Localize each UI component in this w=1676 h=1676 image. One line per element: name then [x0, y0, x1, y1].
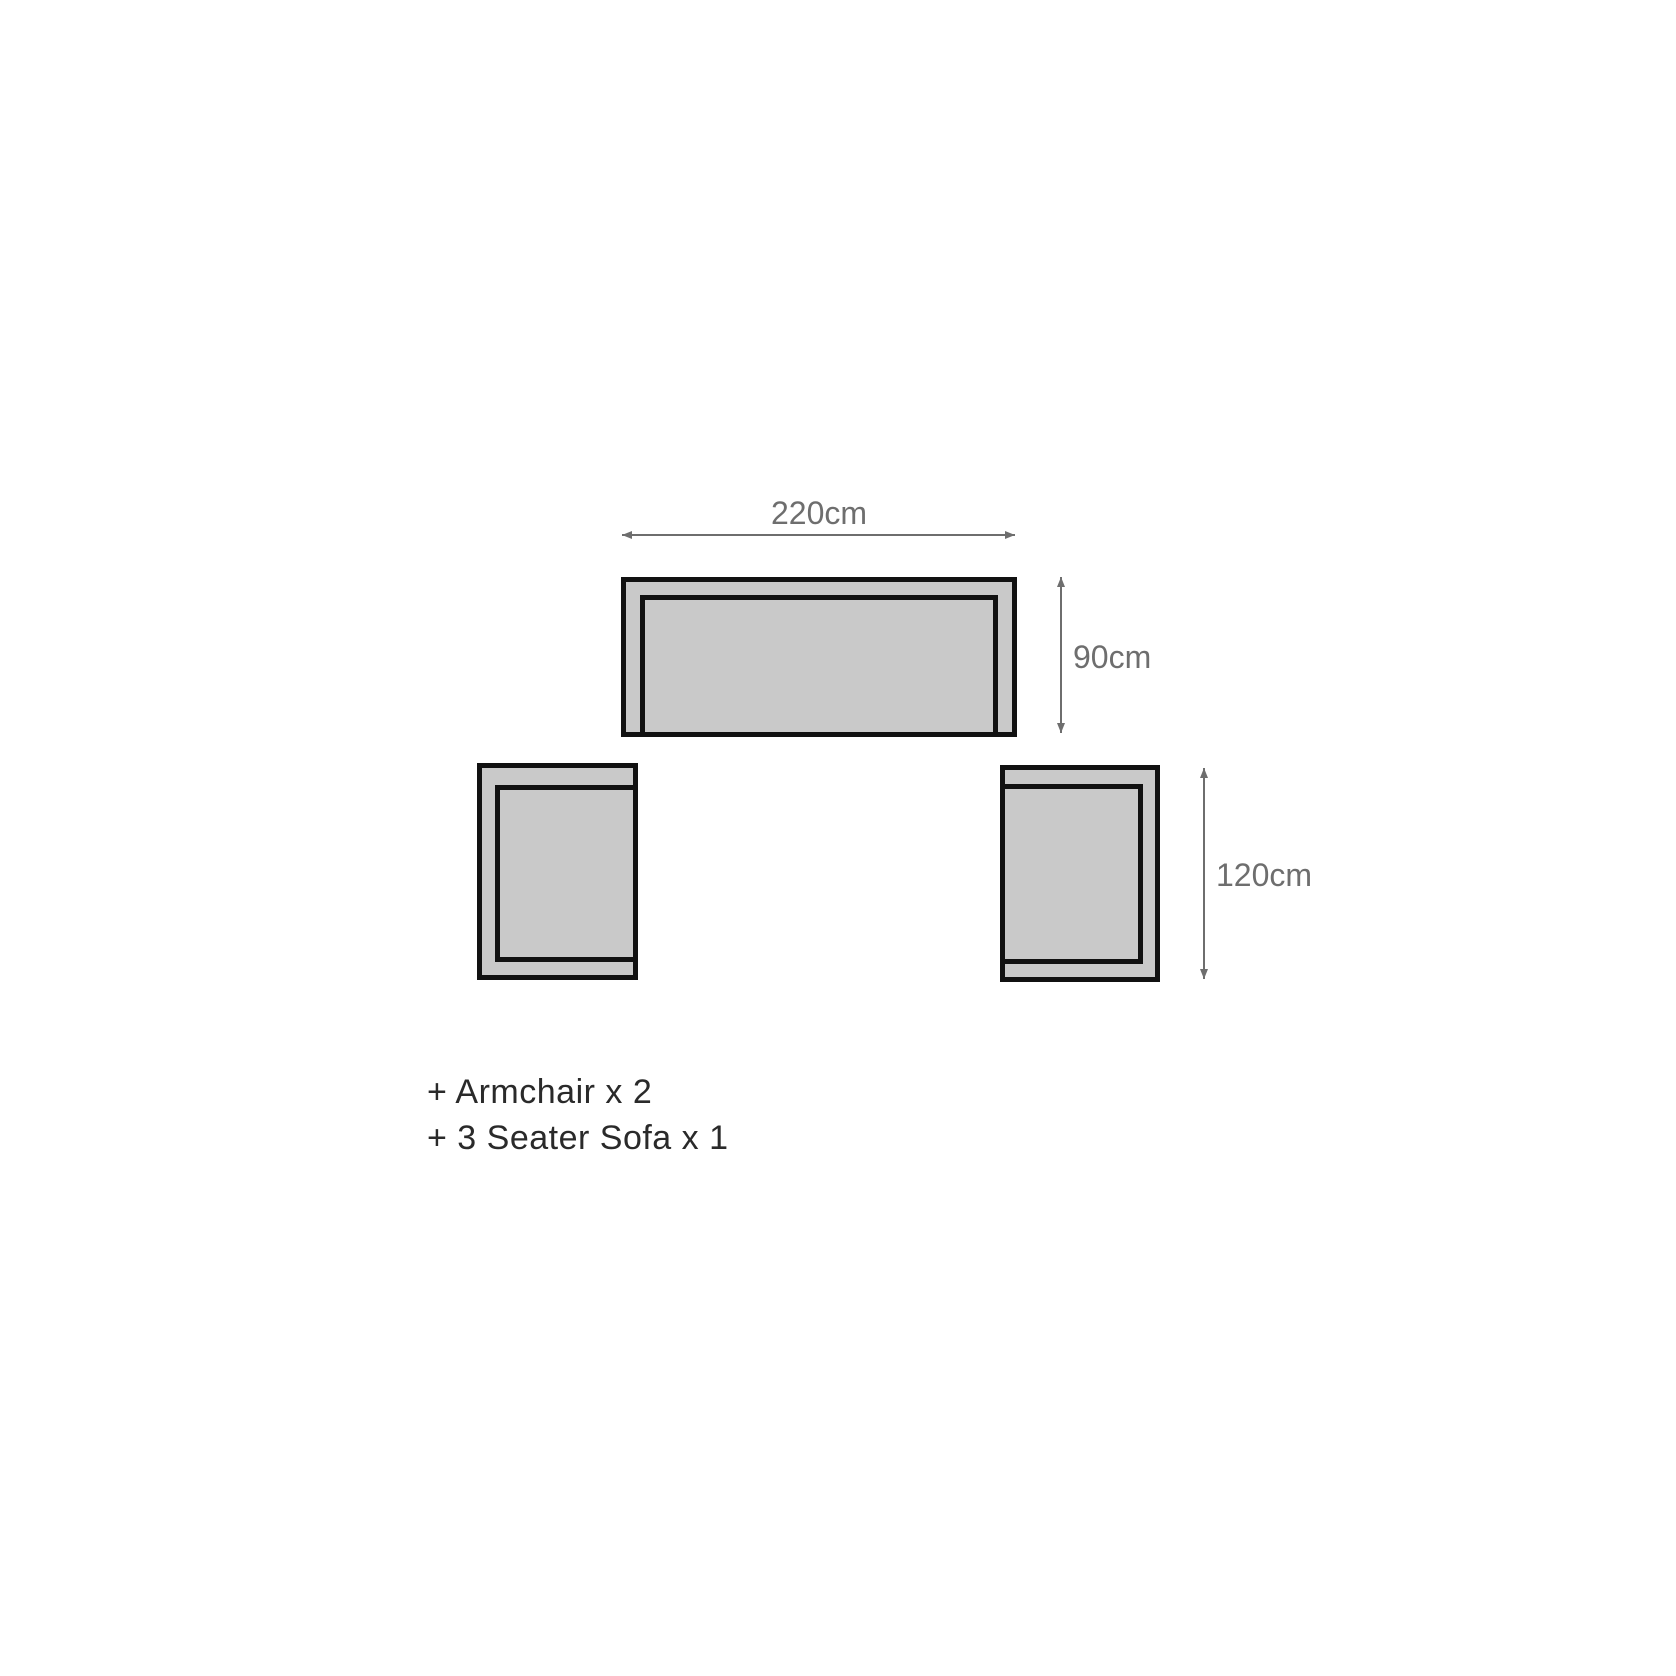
armchair-left-outer-rect [480, 766, 636, 978]
armchair-left-shape [480, 766, 639, 978]
sofa-depth-label: 90cm [1073, 639, 1151, 675]
included-items-list: + Armchair x 2 + 3 Seater Sofa x 1 [427, 1073, 729, 1157]
armchair-depth-dimension: 120cm [1204, 768, 1312, 979]
diagram-svg: 220cm 90cm 120cm + Armchair x 2 + 3 Seat… [0, 0, 1676, 1676]
sofa-depth-dimension: 90cm [1061, 577, 1151, 733]
sofa-width-dimension: 220cm [622, 495, 1015, 535]
armchair-depth-label: 120cm [1216, 857, 1312, 893]
sofa-outer-rect [624, 580, 1015, 735]
sofa-shape [624, 580, 1015, 738]
legend-item-armchair: + Armchair x 2 [427, 1073, 652, 1111]
furniture-dimension-diagram: 220cm 90cm 120cm + Armchair x 2 + 3 Seat… [0, 0, 1676, 1676]
legend-item-sofa: + 3 Seater Sofa x 1 [427, 1119, 729, 1157]
armchair-right-outer-rect [1003, 768, 1158, 980]
armchair-right-shape [1000, 768, 1158, 980]
sofa-width-label: 220cm [771, 495, 867, 531]
